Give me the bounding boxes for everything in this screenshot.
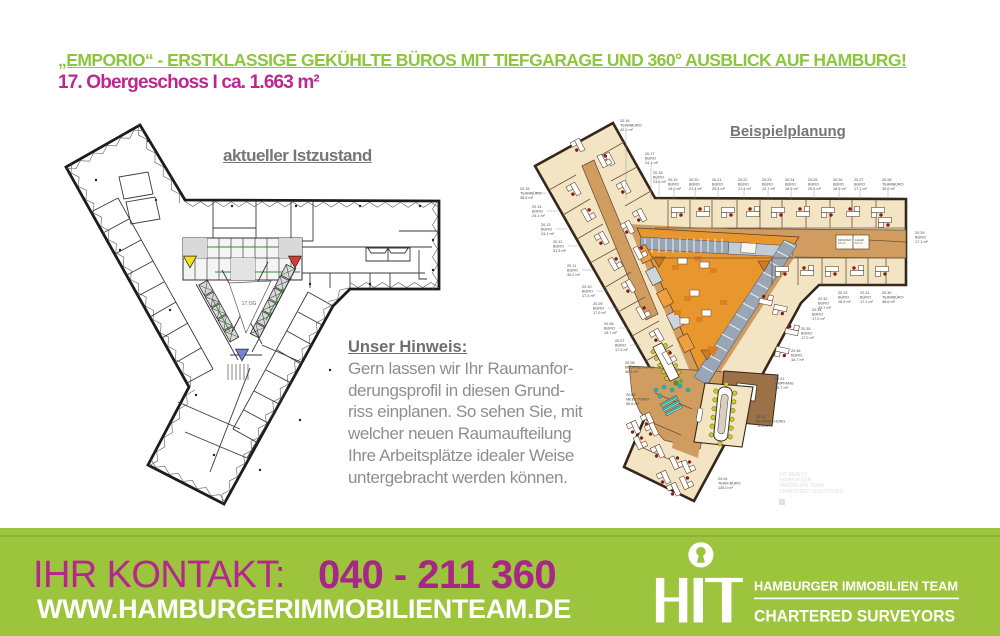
svg-text:20.11BÜRO30.2 m²: 20.11BÜRO30.2 m² xyxy=(567,264,581,277)
svg-text:20.21BÜRO25.3 m²: 20.21BÜRO25.3 m² xyxy=(712,178,726,191)
svg-text:20.12BÜRO16.9 m²: 20.12BÜRO16.9 m² xyxy=(838,291,852,304)
svg-text:20.01EMPFANG35.7 m²: 20.01EMPFANG35.7 m² xyxy=(775,377,794,390)
svg-text:20.35BÜRO17.0 m²: 20.35BÜRO17.0 m² xyxy=(801,327,815,340)
svg-text:20.15TEAMBÜRO38.9 m²: 20.15TEAMBÜRO38.9 m² xyxy=(520,187,542,200)
svg-text:20.07BÜRO17.0 m²: 20.07BÜRO17.0 m² xyxy=(615,339,629,352)
svg-text:20.31BÜRO17.1 m²: 20.31BÜRO17.1 m² xyxy=(860,291,874,304)
svg-text:20.27BÜRO17.1 m²: 20.27BÜRO17.1 m² xyxy=(854,178,868,191)
svg-text:20.16TEAMBURO42.2 m²: 20.16TEAMBURO42.2 m² xyxy=(620,119,642,132)
svg-text:20.08BÜRO15.7 m²: 20.08BÜRO15.7 m² xyxy=(604,322,618,335)
svg-text:20.20BÜRO21.4 m²: 20.20BÜRO21.4 m² xyxy=(689,178,703,191)
svg-text:20.34BÜRO17.0 m²: 20.34BÜRO17.0 m² xyxy=(812,308,826,321)
svg-text:20.29BÜRO17.1 m²: 20.29BÜRO17.1 m² xyxy=(915,231,929,244)
svg-text:20.28TEAMBÜRO30.0 m²: 20.28TEAMBÜRO30.0 m² xyxy=(882,178,904,191)
svg-text:20.26BÜRO16.9 m²: 20.26BÜRO16.9 m² xyxy=(833,178,847,191)
svg-text:20.12BÜRO31.3 m²: 20.12BÜRO31.3 m² xyxy=(553,240,567,253)
svg-text:CHARTERED SURVEYORS: CHARTERED SURVEYORS xyxy=(754,608,955,626)
svg-text:20.09BÜRO17.0 m²: 20.09BÜRO17.0 m² xyxy=(593,302,607,315)
svg-text:20.10BÜRO17.0 m²: 20.10BÜRO17.0 m² xyxy=(582,285,596,298)
svg-text:20.04TEAM BÜRO135.0 m²: 20.04TEAM BÜRO135.0 m² xyxy=(718,477,741,490)
svg-text:20.18BÜRO23.6 m²: 20.18BÜRO23.6 m² xyxy=(653,171,667,184)
svg-text:17.OG: 17.OG xyxy=(242,301,257,307)
svg-text:20.19BÜRO19.0 m²: 20.19BÜRO19.0 m² xyxy=(668,178,682,191)
svg-text:20.14BÜRO24.1 m²: 20.14BÜRO24.1 m² xyxy=(532,205,546,218)
svg-text:20.30TEAMBÜRO38.6 m²: 20.30TEAMBÜRO38.6 m² xyxy=(882,291,904,304)
svg-text:20.23BÜRO12.7 m²: 20.23BÜRO12.7 m² xyxy=(762,178,776,191)
svg-text:20.36BÜRO16.7 m²: 20.36BÜRO16.7 m² xyxy=(791,349,805,362)
svg-text:20.13BÜRO24.1 m²: 20.13BÜRO24.1 m² xyxy=(541,223,555,236)
svg-text:HIT REALTYHAMBURGERIMMOBILIEN: HIT REALTYHAMBURGERIMMOBILIEN TEAMCHARTE… xyxy=(779,472,843,495)
svg-text:20.24BÜRO16.9 m²: 20.24BÜRO16.9 m² xyxy=(785,178,799,191)
svg-text:HAMBURGER IMMOBILIEN TEAM: HAMBURGER IMMOBILIEN TEAM xyxy=(754,579,958,594)
svg-text:20.22BÜRO21.4 m²: 20.22BÜRO21.4 m² xyxy=(738,178,752,191)
svg-text:20.17BÜRO24.1 m²: 20.17BÜRO24.1 m² xyxy=(645,152,659,165)
svg-text:20.25BÜRO25.9 m²: 20.25BÜRO25.9 m² xyxy=(808,178,822,191)
